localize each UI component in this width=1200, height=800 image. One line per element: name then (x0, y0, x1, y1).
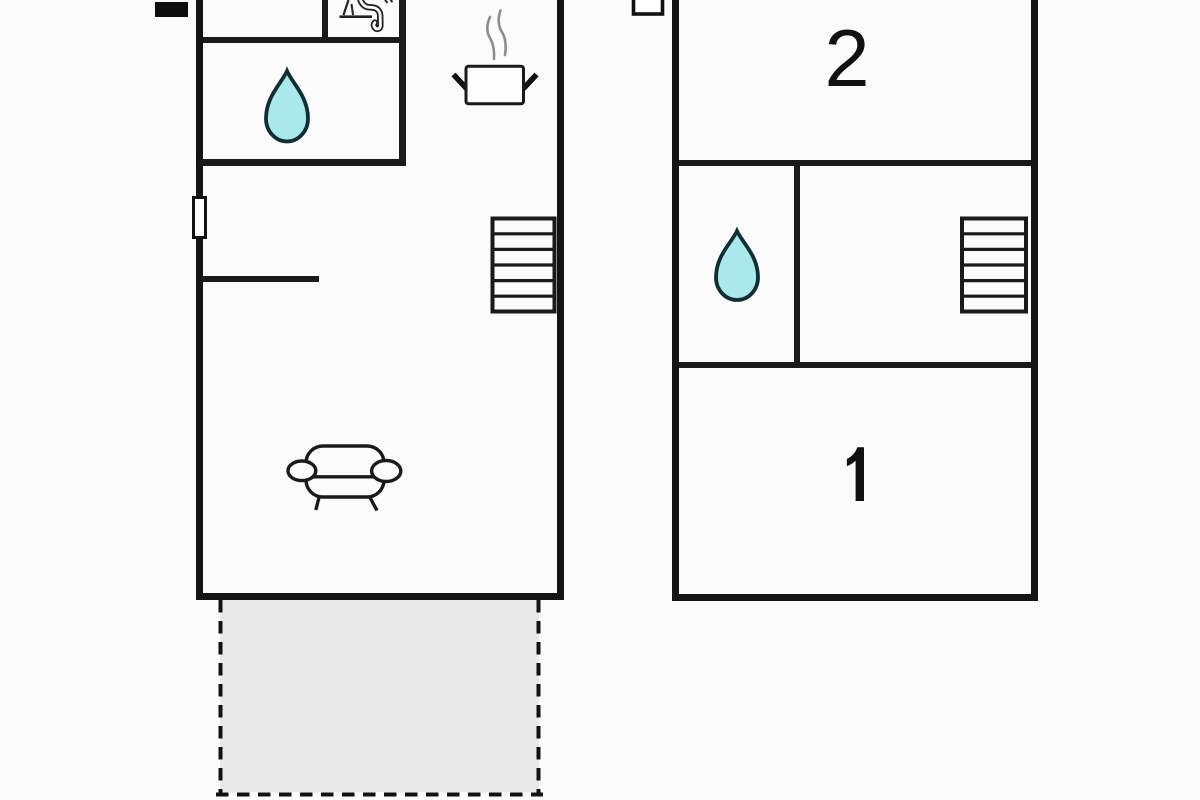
svg-text:2: 2 (824, 14, 869, 104)
